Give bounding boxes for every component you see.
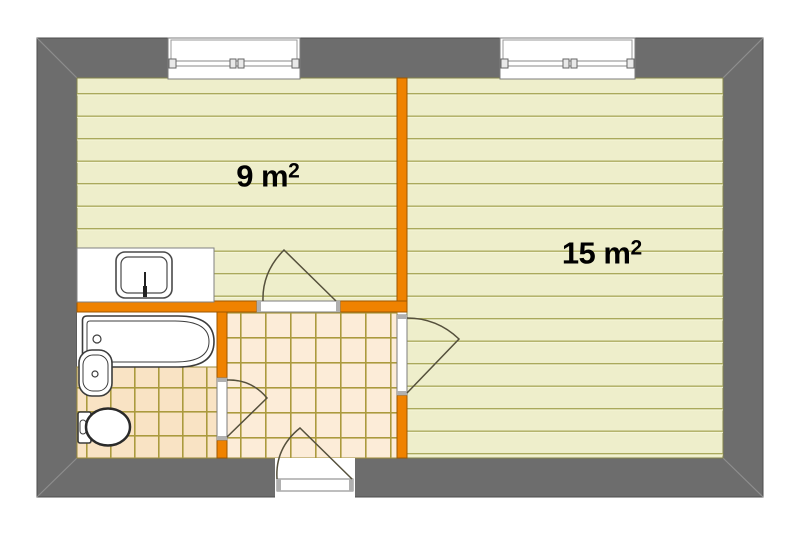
window-left-icon [168,38,300,79]
kitchen-counter [77,248,214,302]
room15-area-sup: 2 [630,236,642,259]
bathroom-wall-upper [217,312,227,378]
kitchen-sink-icon [116,252,172,298]
floor-plan: 9 m2 15 m2 [0,0,800,537]
hall-wall-right [340,301,407,312]
room15-area-value: 15 m [562,235,631,270]
window-right-icon [500,38,635,79]
room9-area-sup: 2 [288,159,300,182]
bathroom-wall-lower [217,440,227,458]
room9-area-value: 9 m [236,158,288,193]
room9-area-label: 9 m2 [236,158,300,194]
toilet-icon [78,409,130,446]
room15-area-label: 15 m2 [562,235,642,271]
divider-wall-upper [397,78,407,312]
divider-wall-lower [397,395,407,458]
washbasin-icon [79,350,112,396]
hall-wall-left [77,301,257,312]
floor-plan-drawing [0,0,800,537]
entrance-opening [275,458,355,498]
